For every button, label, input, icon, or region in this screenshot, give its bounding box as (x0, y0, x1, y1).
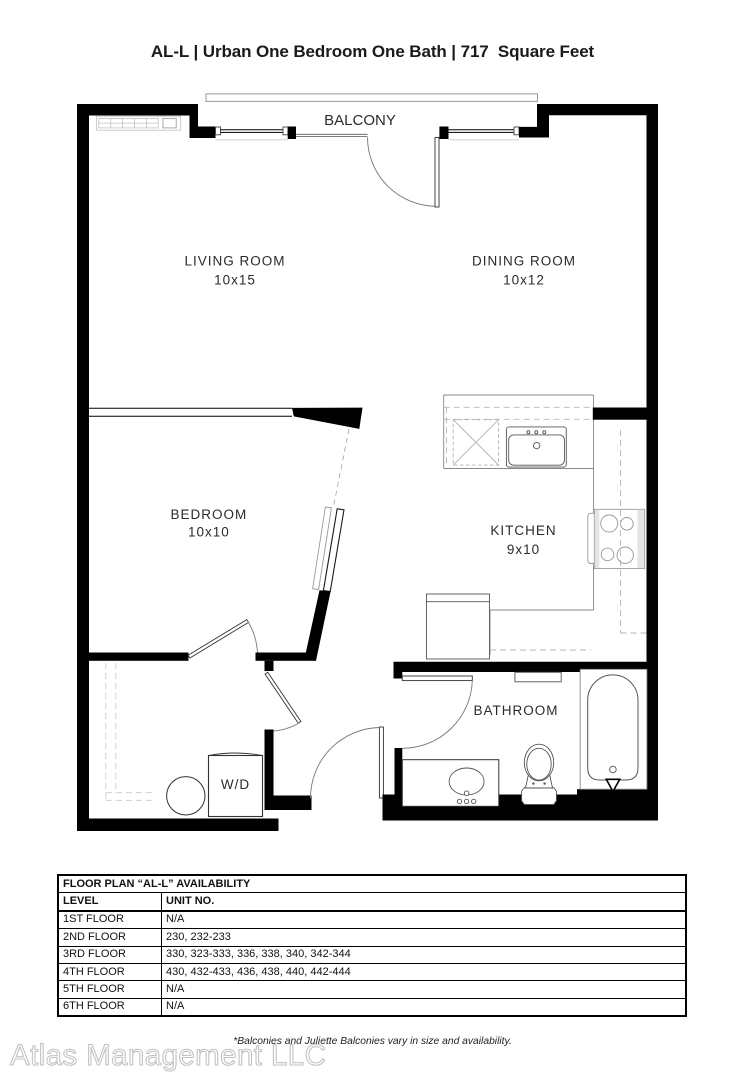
svg-text:9x10: 9x10 (507, 542, 540, 557)
svg-text:10x15: 10x15 (214, 273, 256, 288)
svg-text:BALCONY: BALCONY (324, 112, 396, 129)
svg-text:BEDROOM: BEDROOM (171, 507, 248, 522)
svg-text:KITCHEN: KITCHEN (490, 523, 556, 538)
svg-text:BATHROOM: BATHROOM (474, 703, 559, 718)
svg-text:W/D: W/D (221, 777, 250, 792)
svg-text:10x12: 10x12 (503, 273, 545, 288)
svg-text:LIVING ROOM: LIVING ROOM (184, 254, 285, 269)
svg-text:10x10: 10x10 (188, 525, 230, 540)
svg-text:DINING ROOM: DINING ROOM (472, 254, 576, 269)
